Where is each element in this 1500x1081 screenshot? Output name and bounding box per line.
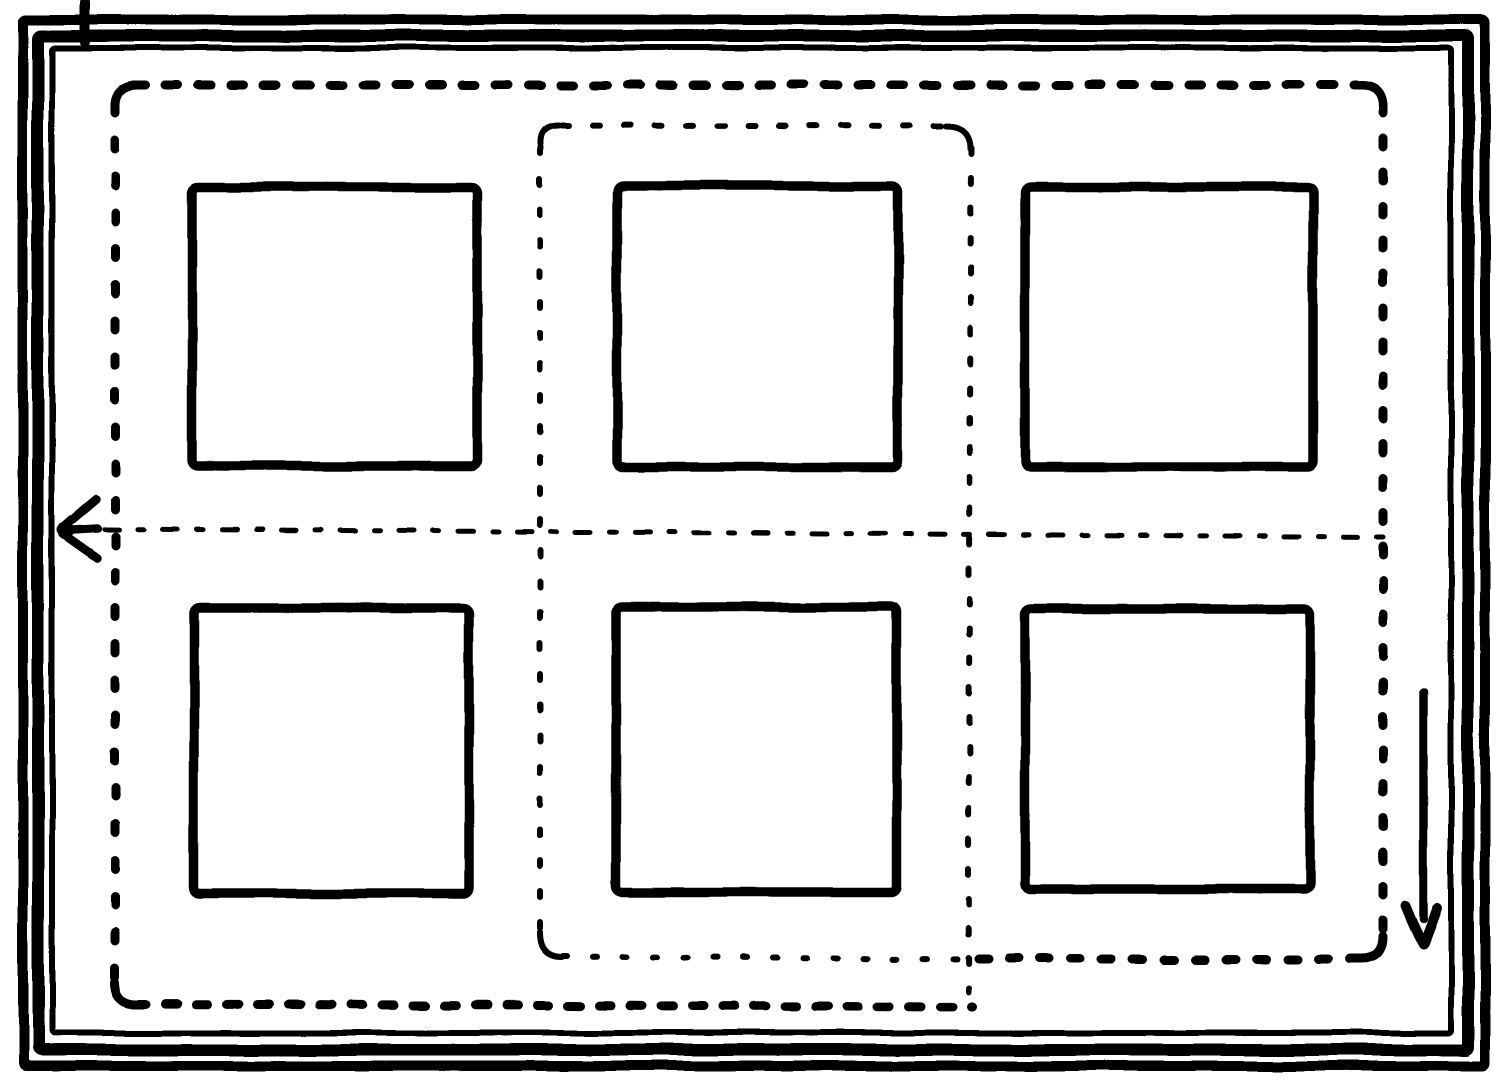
aperture-squares — [192, 186, 1313, 893]
border-frames — [23, 20, 1485, 1066]
center-scan-line — [104, 529, 1383, 537]
border-frame-outermost — [23, 20, 1485, 1066]
outer-dashed-boundary — [115, 85, 1383, 1007]
outer-dashed-boundary-corner-bottom-right — [1361, 936, 1383, 959]
inner-dashdot-boundary-edge-top — [562, 125, 948, 126]
left-arrow-prong-upper — [63, 499, 96, 527]
aperture-square-r2c2 — [616, 607, 897, 892]
inner-dashdot-boundary-edge-right — [968, 148, 971, 992]
figure-svg — [0, 0, 1500, 1081]
outer-dashed-boundary-edge-bottom-left-span — [134, 1004, 972, 1007]
center-scan-line-dashes — [104, 529, 1383, 537]
left-arrow — [57, 499, 97, 558]
left-arrow-prong-lower — [63, 534, 97, 558]
aperture-square-r1c3 — [1025, 187, 1313, 467]
outer-dashed-boundary-corner-top-right — [1361, 85, 1383, 107]
inner-dashdot-boundary-corner-bottom-left — [540, 932, 562, 957]
figure-root — [23, 2, 1485, 1066]
aperture-square-r1c1 — [192, 187, 477, 466]
aperture-square-r1c2 — [617, 186, 898, 467]
aperture-square-r2c1 — [194, 608, 469, 893]
outer-dashed-boundary-corner-top-left — [115, 85, 137, 108]
scanned-figure-page — [0, 0, 1500, 1081]
inner-dashdot-boundary-corner-top-right — [946, 126, 970, 149]
down-arrow — [1405, 692, 1437, 944]
left-arrow-tip-blob — [57, 523, 75, 537]
aperture-square-r2c3 — [1025, 609, 1310, 889]
inner-dashdot-boundary — [540, 125, 976, 992]
inner-dashdot-boundary-corner-top-left — [540, 125, 559, 144]
outer-dashed-boundary-corner-bottom-left — [115, 982, 138, 1004]
inner-dashdot-boundary-edge-bottom — [563, 956, 976, 959]
